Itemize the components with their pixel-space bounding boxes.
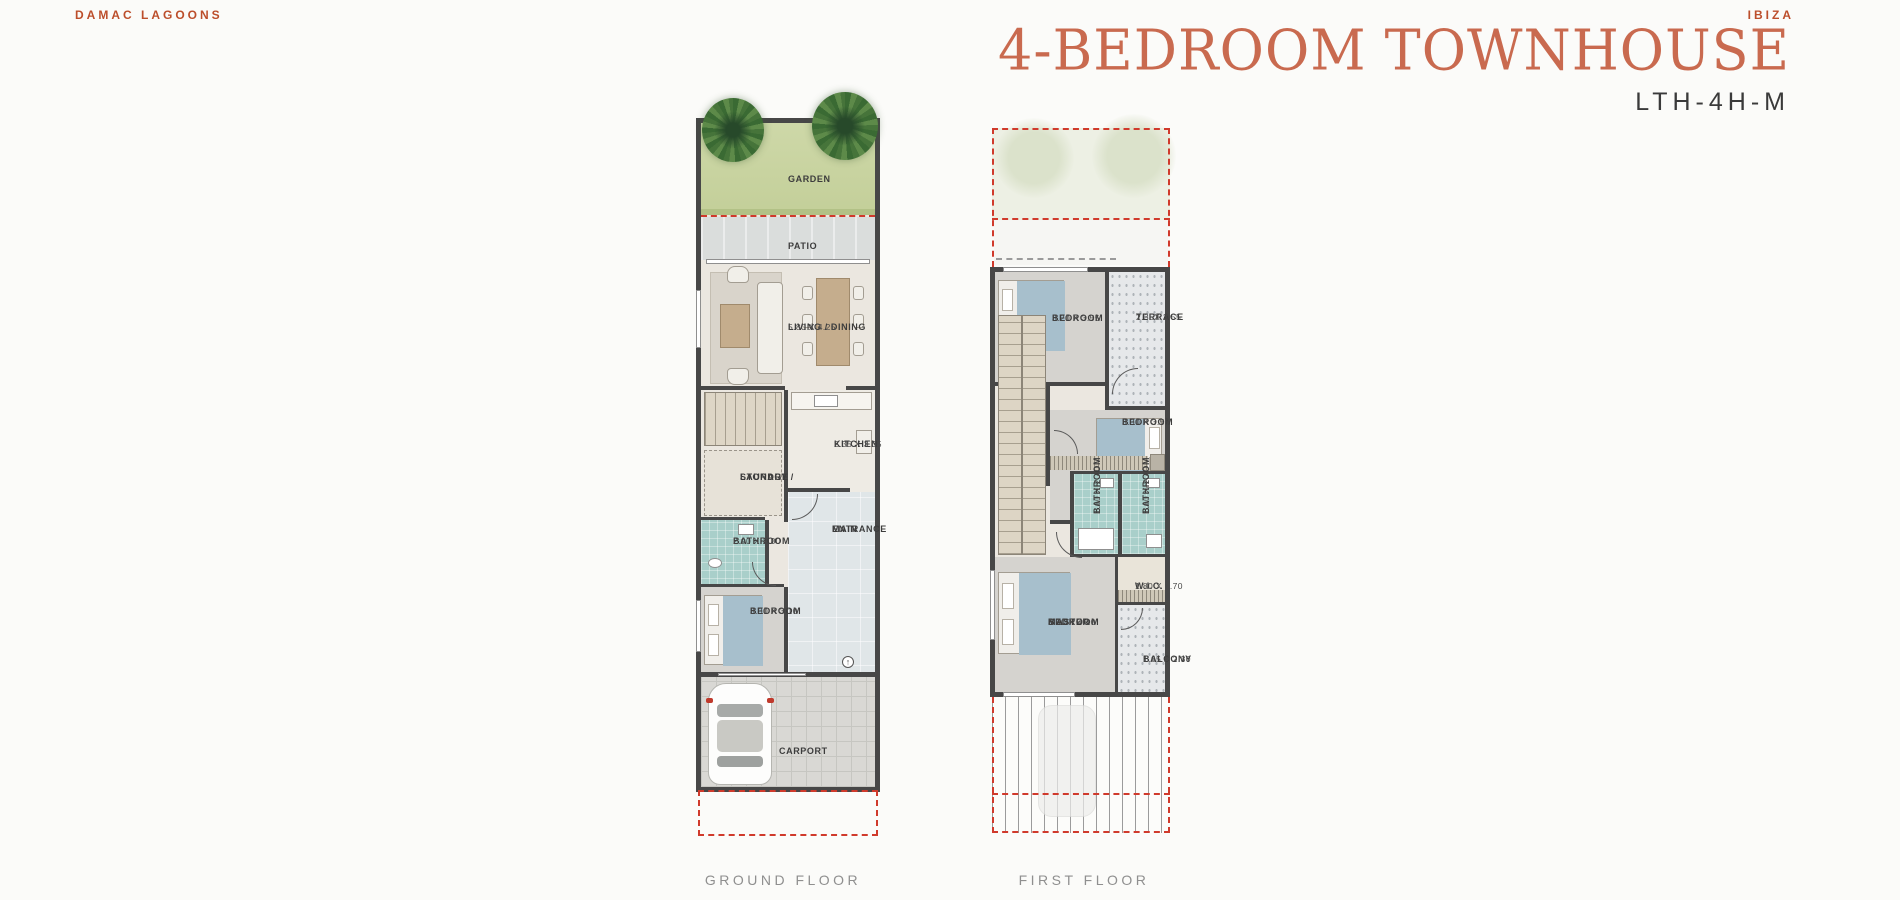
chair-icon (853, 286, 864, 300)
ff-plot-line (992, 218, 1170, 220)
stair-rail (1021, 315, 1023, 555)
armchair-icon (727, 368, 749, 385)
ff-window (1003, 692, 1075, 697)
ground-floor-plan: ↑ GARDEN PATIO LIVING / DINING5.80 X 4.2… (696, 100, 880, 840)
floorplan-page: { "header": { "brand": "DAMAC LAGOONS", … (0, 0, 1900, 900)
gf-plot-dashed-outline (698, 790, 878, 836)
chair-icon (853, 342, 864, 356)
ff-plot-line-bottom (992, 793, 1170, 795)
page-title: 4-BEDROOM TOWNHOUSE (998, 21, 1790, 81)
gf-laundry-area (704, 450, 782, 516)
bathtub-icon (1078, 528, 1114, 550)
kitchen-sink-icon (814, 395, 838, 407)
car-icon (708, 683, 772, 785)
gf-staircase (704, 392, 782, 446)
gf-window (696, 600, 701, 652)
toilet-icon (738, 524, 754, 535)
unit-code: LTH-4H-M (1635, 88, 1790, 117)
palm-tree-icon (702, 98, 764, 162)
toilet-icon (1146, 534, 1162, 548)
wc-sink-icon (708, 558, 722, 568)
brand-logo-text: DAMAC LAGOONS (75, 8, 223, 22)
ff-window (990, 570, 995, 640)
chair-icon (802, 342, 813, 356)
gf-wall (784, 587, 788, 672)
gf-garage-door (718, 673, 806, 676)
first-floor-caption: FIRST FLOOR (1019, 872, 1150, 888)
ff-projection-line (996, 258, 1116, 260)
ff-wall (1046, 386, 1050, 486)
entry-arrow-icon: ↑ (842, 656, 854, 668)
coffee-table-icon (720, 304, 750, 348)
ff-duct (1150, 454, 1165, 471)
ff-pergola-dashed-outline (992, 697, 1170, 833)
ff-wall (1105, 272, 1109, 406)
gf-wall (701, 386, 785, 390)
chair-icon (802, 286, 813, 300)
gf-window (696, 290, 701, 348)
armchair-icon (727, 266, 749, 283)
sofa-icon (757, 282, 783, 374)
palm-tree-icon (812, 92, 878, 160)
gf-patio-window (706, 259, 870, 264)
ground-floor-caption: GROUND FLOOR (705, 872, 861, 888)
bed-icon (998, 572, 1070, 654)
gf-bathroom-area (701, 520, 765, 587)
ff-plot-dashed-outline (992, 128, 1170, 267)
gf-wall (788, 488, 850, 492)
first-floor-plan: BEDROOM3.20 X 3.55 TERRACE2.35X 3.55 BED… (988, 100, 1172, 840)
ff-window (1003, 267, 1088, 272)
gf-patio-area (701, 217, 875, 260)
gf-entrance-area (788, 492, 875, 690)
